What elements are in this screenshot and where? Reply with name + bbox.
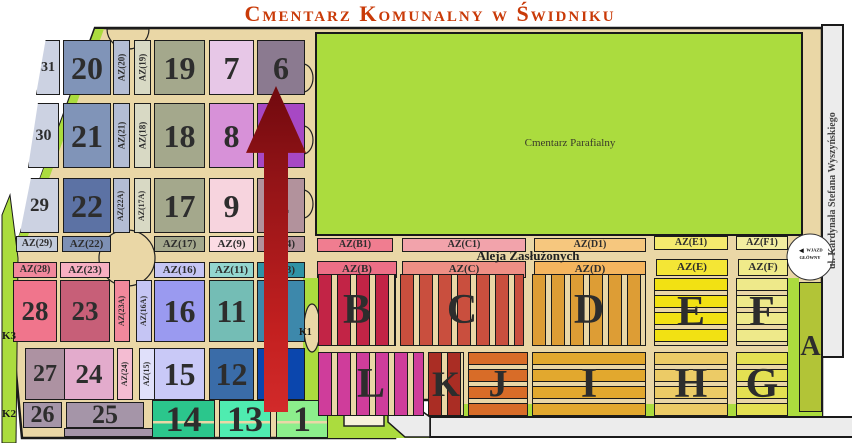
section-label: AZ(17A)	[139, 190, 147, 220]
section-az24[interactable]: AZ(24)	[117, 348, 133, 400]
section-label: 17	[164, 190, 196, 222]
section-label: E	[677, 291, 705, 333]
section-label: AZ(E1)	[675, 238, 707, 248]
section-H[interactable]: H	[654, 352, 728, 416]
section-az11[interactable]: AZ(11)	[209, 262, 254, 278]
section-label: 8	[224, 120, 240, 152]
section-label: 20	[71, 52, 103, 84]
section-az21[interactable]: AZ(21)	[113, 103, 130, 168]
section-17[interactable]: 17	[154, 178, 205, 233]
section-label: 14	[166, 401, 202, 437]
section-label: AZ(16A)	[140, 296, 148, 326]
section-label: AZ(9)	[217, 239, 245, 250]
section-label: G	[746, 363, 779, 405]
section-label: 16	[164, 295, 196, 327]
section-azf1[interactable]: AZ(F1)	[736, 236, 788, 250]
section-label: 9	[224, 190, 240, 222]
street-name-label: ul. Kardynała Stefana Wyszyńskiego	[822, 25, 843, 357]
section-aze[interactable]: AZ(E)	[656, 259, 728, 276]
section-19[interactable]: 19	[154, 40, 205, 95]
parish-cemetery-label: Cmentarz Parafialny	[470, 137, 670, 149]
parish-cemetery-area	[316, 33, 802, 235]
gate-k1-label: K1	[299, 327, 312, 338]
section-label: AZ(21)	[117, 122, 126, 150]
section-E[interactable]: E	[654, 278, 728, 346]
alley-label: Aleja Zasłużonych	[428, 248, 628, 264]
gate-k2-label: K2	[2, 408, 16, 420]
section-25[interactable]: 25	[66, 402, 144, 428]
section-az9[interactable]: AZ(9)	[209, 236, 254, 252]
section-28[interactable]: 28	[13, 280, 57, 342]
section-20[interactable]: 20	[63, 40, 111, 95]
section-az22a[interactable]: AZ(22A)	[113, 178, 130, 233]
main-entrance-label: ◄ WJAZD GŁÓWNY	[791, 246, 829, 260]
section-label: AZ(20)	[117, 54, 126, 82]
section-label: AZ(11)	[215, 265, 248, 276]
section-label: 18	[164, 120, 196, 152]
left-arrow-icon: ◄	[797, 246, 805, 255]
map-title: Cmentarz Komunalny w Świdniku	[140, 1, 720, 27]
section-16[interactable]: 16	[154, 280, 205, 342]
section-az28[interactable]: AZ(28)	[13, 262, 57, 278]
section-12[interactable]: 12	[209, 348, 254, 400]
section-label: 28	[22, 298, 49, 325]
section-label: B	[343, 289, 371, 331]
section-label: AZ(22)	[70, 239, 104, 250]
section-label: F	[749, 291, 775, 333]
section-K[interactable]: K	[428, 352, 464, 416]
section-label: AZ(22A)	[118, 190, 126, 220]
section-label: D	[574, 289, 604, 331]
section-6[interactable]: 6	[257, 40, 305, 95]
section-label: 25	[92, 402, 118, 428]
section-az16a[interactable]: AZ(16A)	[136, 280, 152, 342]
section-label: 23	[72, 298, 99, 325]
section-label: L	[357, 363, 385, 405]
section-13[interactable]: 13	[219, 400, 271, 438]
section-label: 19	[164, 52, 196, 84]
section-label: AZ(24)	[121, 362, 129, 386]
section-label: 22	[71, 190, 103, 222]
section-label: 12	[216, 358, 248, 390]
section-label: AZ(23A)	[118, 296, 126, 326]
section-label: 30	[36, 128, 52, 144]
section-label: J	[489, 365, 508, 403]
section-label: AZ(17)	[163, 239, 197, 250]
section-J[interactable]: J	[468, 352, 528, 416]
section-label: AZ(23)	[68, 265, 102, 276]
section-label: AZ(18)	[138, 122, 147, 150]
section-21[interactable]: 21	[63, 103, 111, 168]
section-azb1[interactable]: AZ(B1)	[317, 238, 393, 252]
street-bottom-road	[430, 417, 852, 437]
section-label: K	[432, 366, 460, 402]
section-F[interactable]: F	[736, 278, 788, 346]
section-label: C	[447, 289, 477, 331]
section-C[interactable]: C	[400, 274, 524, 346]
section-18[interactable]: 18	[154, 103, 205, 168]
section-label: 21	[71, 120, 103, 152]
section-label: 6	[273, 52, 289, 84]
cemetery-map: 3120AZ(20)AZ(19)19763021AZ(21)AZ(18)1882…	[0, 0, 852, 443]
section-az17a[interactable]: AZ(17A)	[134, 178, 151, 233]
section-label: AZ(15)	[143, 362, 151, 386]
section-az18[interactable]: AZ(18)	[134, 103, 151, 168]
section-11[interactable]: 11	[209, 280, 254, 342]
section-label: AZ(E)	[677, 262, 707, 273]
section-label: AZ(F)	[748, 262, 777, 273]
section-A[interactable]: A	[799, 282, 822, 412]
section-az22[interactable]: AZ(22)	[62, 236, 111, 252]
section-az15[interactable]: AZ(15)	[139, 348, 155, 400]
gate-k3-label: K3	[2, 330, 16, 342]
section-az20[interactable]: AZ(20)	[113, 40, 130, 95]
section-B[interactable]: B	[318, 274, 396, 346]
section-label: AZ(29)	[22, 239, 53, 249]
section-14[interactable]: 14	[152, 400, 215, 438]
section-label: AZ(28)	[20, 265, 51, 275]
section-az16[interactable]: AZ(16)	[154, 262, 205, 278]
section-label: AZ(F1)	[746, 238, 778, 248]
section-26[interactable]: 26	[23, 402, 62, 428]
section-label: AZ(16)	[163, 265, 197, 276]
section-label: 24	[76, 361, 103, 388]
grass-right-gap	[788, 278, 799, 412]
section-azf[interactable]: AZ(F)	[738, 259, 788, 276]
section-23[interactable]: 23	[60, 280, 110, 342]
section-az19[interactable]: AZ(19)	[134, 40, 151, 95]
section-15[interactable]: 15	[154, 348, 205, 400]
section-22[interactable]: 22	[63, 178, 111, 233]
section-label: 1	[293, 401, 311, 437]
section-label: 26	[31, 403, 55, 427]
section-aze1[interactable]: AZ(E1)	[654, 236, 728, 250]
section-label: 29	[30, 196, 49, 215]
section-label: AZ(B1)	[339, 240, 371, 250]
section-az23[interactable]: AZ(23)	[60, 262, 110, 278]
section-L[interactable]: L	[318, 352, 424, 416]
section-8[interactable]: 8	[209, 103, 254, 168]
section-az17[interactable]: AZ(17)	[154, 236, 205, 252]
section-label: A	[800, 333, 820, 361]
section-label: 15	[164, 358, 196, 390]
section-label: 7	[224, 52, 240, 84]
section-az29[interactable]: AZ(29)	[16, 236, 58, 252]
section-label: I	[581, 363, 597, 405]
section-label: 13	[227, 401, 263, 437]
section-G[interactable]: G	[736, 352, 788, 416]
section-label: 27	[33, 362, 57, 386]
section-label: H	[675, 363, 708, 405]
section-I[interactable]: I	[532, 352, 646, 416]
section-label: 31	[41, 61, 55, 75]
section-az23a[interactable]: AZ(23A)	[114, 280, 130, 342]
section-7[interactable]: 7	[209, 40, 254, 95]
section-27[interactable]: 27	[25, 348, 65, 400]
section-9[interactable]: 9	[209, 178, 254, 233]
section-24[interactable]: 24	[64, 348, 114, 400]
section-label: AZ(19)	[138, 54, 147, 82]
section-label: 11	[216, 295, 246, 327]
section-D[interactable]: D	[532, 274, 646, 346]
